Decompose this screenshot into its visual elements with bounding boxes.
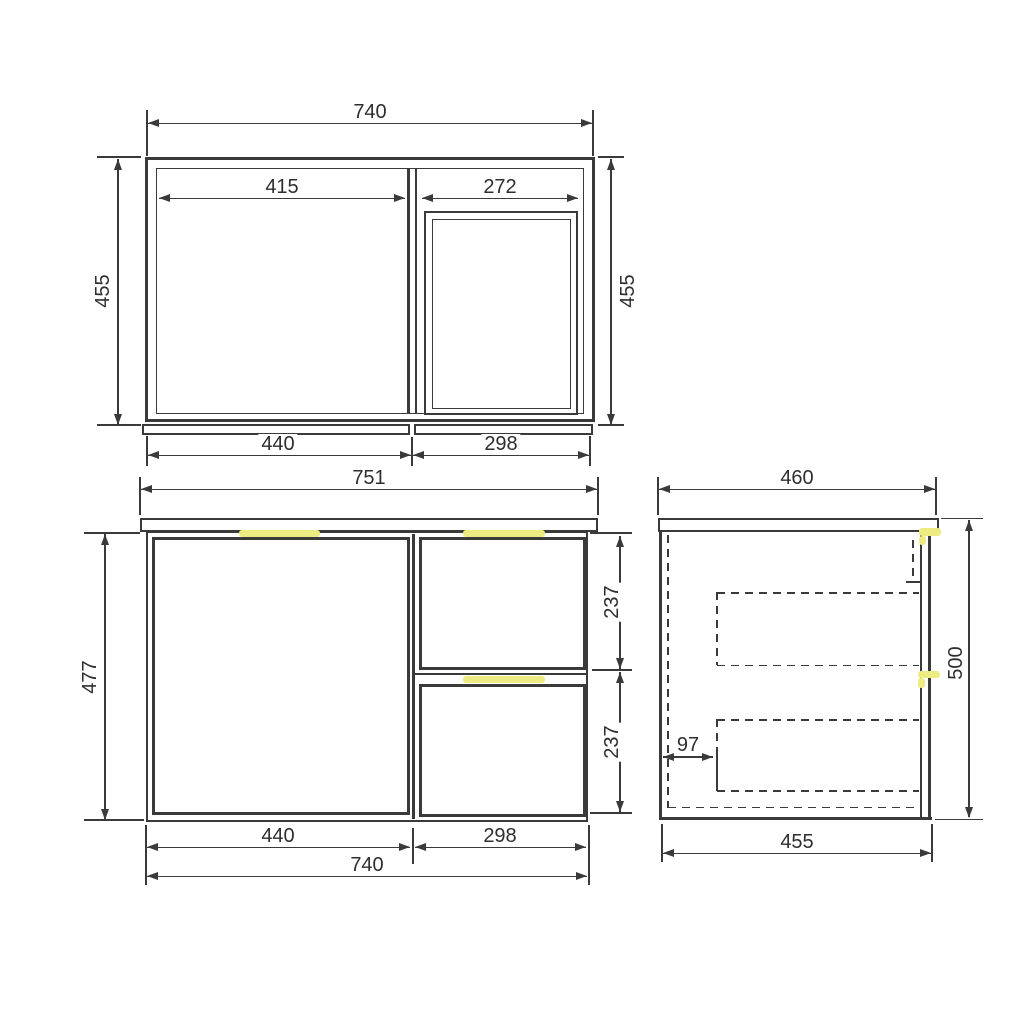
arrowhead — [415, 843, 426, 851]
extension-line — [97, 156, 141, 158]
front-view-drawer-rail — [414, 673, 586, 676]
arrowhead — [575, 843, 586, 851]
extension-line — [84, 532, 140, 534]
arrowhead — [114, 159, 122, 170]
arrowhead — [148, 119, 159, 127]
dim-label-drawer-back-offset: 97 — [674, 735, 702, 755]
arrowhead — [607, 414, 615, 425]
side-view-runner-step — [906, 581, 921, 583]
side-view-back-hidden-line — [667, 535, 669, 808]
arrowhead — [702, 753, 713, 761]
door-handle — [239, 530, 320, 537]
extension-line — [412, 828, 414, 864]
extension-line — [598, 156, 624, 158]
dim-label-body-height: 477 — [80, 657, 100, 696]
arrowhead — [616, 536, 624, 547]
arrowhead — [567, 194, 578, 202]
arrowhead — [965, 807, 973, 818]
top-view-divider — [415, 168, 418, 414]
hidden-bottom-drawer-back — [716, 719, 718, 749]
dim-label-top-drawer-height: 237 — [602, 582, 622, 621]
dim-label-bottom-drawer-height: 237 — [602, 722, 622, 761]
arrowhead — [924, 485, 935, 493]
extension-line — [592, 669, 632, 671]
side-view-bottom-hidden-line — [668, 807, 918, 809]
extension-line — [590, 812, 632, 814]
arrowhead — [399, 843, 410, 851]
front-view-door — [152, 537, 410, 815]
dim-label-right-opening: 272 — [480, 177, 519, 197]
extension-line — [590, 532, 632, 534]
dim-label-depth-right: 455 — [618, 271, 638, 310]
top-drawer-handle — [463, 530, 545, 537]
arrowhead — [586, 485, 597, 493]
arrowhead — [965, 520, 973, 531]
side-view-bottom — [659, 817, 932, 820]
dimension-line — [968, 520, 970, 817]
front-view-top-drawer — [419, 537, 586, 670]
arrowhead — [159, 194, 170, 202]
dim-label-front-overall-width: 740 — [347, 855, 386, 875]
technical-drawing-canvas: 740 415 272 455 455 — [0, 0, 1024, 1024]
dim-label-overall-height: 500 — [946, 643, 966, 682]
arrowhead — [394, 194, 405, 202]
dimension-line — [610, 159, 612, 425]
arrowhead — [141, 485, 152, 493]
side-drawer-handle — [918, 671, 940, 678]
bottom-drawer-handle — [463, 676, 545, 683]
extension-line — [597, 477, 599, 515]
extension-line — [716, 748, 718, 791]
dimension-line — [104, 534, 106, 820]
extension-line — [657, 477, 659, 515]
arrowhead — [659, 485, 670, 493]
arrowhead — [422, 194, 433, 202]
dimension-line — [117, 159, 119, 425]
arrowhead — [616, 658, 624, 669]
side-view-benchtop — [658, 518, 939, 532]
extension-line — [139, 477, 141, 515]
side-drawer-handle — [918, 678, 925, 688]
hidden-top-drawer-back — [716, 592, 718, 665]
arrowhead — [616, 672, 624, 683]
front-view-divider — [412, 534, 415, 819]
arrowhead — [400, 451, 411, 459]
extension-line — [592, 110, 594, 156]
dim-label-front-drawer-section: 298 — [480, 826, 519, 846]
hidden-top-drawer-bottom — [717, 665, 919, 667]
arrowhead — [147, 872, 158, 880]
arrowhead — [101, 534, 109, 545]
arrowhead — [148, 451, 159, 459]
side-view-runner-hidden-line — [912, 540, 914, 580]
arrowhead — [663, 849, 674, 857]
extension-line — [84, 819, 144, 821]
dim-label-body-depth: 455 — [777, 832, 816, 852]
extension-line — [588, 825, 590, 885]
arrowhead — [663, 753, 674, 761]
hidden-top-drawer-top — [717, 592, 919, 594]
extension-line — [931, 824, 933, 862]
arrowhead — [616, 801, 624, 812]
dim-label-drawer-section: 298 — [481, 434, 520, 454]
dim-label-depth-left: 455 — [93, 271, 113, 310]
extension-line — [146, 110, 148, 156]
arrowhead — [607, 159, 615, 170]
dim-label-top-depth: 460 — [777, 468, 816, 488]
front-view-bottom-drawer — [419, 684, 586, 817]
dim-label-top-panel-width: 751 — [349, 468, 388, 488]
arrowhead — [101, 809, 109, 820]
arrowhead — [114, 414, 122, 425]
top-view-divider — [407, 168, 410, 414]
extension-line — [935, 477, 937, 515]
arrowhead — [147, 843, 158, 851]
dim-label-front-door-section: 440 — [258, 826, 297, 846]
arrowhead — [581, 119, 592, 127]
hidden-bottom-drawer-bottom — [717, 790, 919, 792]
dim-label-top-overall-width: 740 — [350, 102, 389, 122]
arrowhead — [576, 872, 587, 880]
side-view-back-wall — [659, 531, 662, 820]
dim-label-left-opening: 415 — [262, 177, 301, 197]
side-door-handle — [919, 536, 926, 545]
arrowhead — [413, 451, 424, 459]
arrowhead — [578, 451, 589, 459]
side-door-handle — [919, 528, 941, 536]
hidden-bottom-drawer-top — [717, 719, 919, 721]
extension-line — [589, 436, 591, 466]
arrowhead — [920, 849, 931, 857]
extension-line — [941, 518, 983, 520]
top-view-drawer-box-inner — [432, 219, 571, 409]
dim-label-door-section: 440 — [258, 434, 297, 454]
extension-line — [935, 819, 983, 821]
